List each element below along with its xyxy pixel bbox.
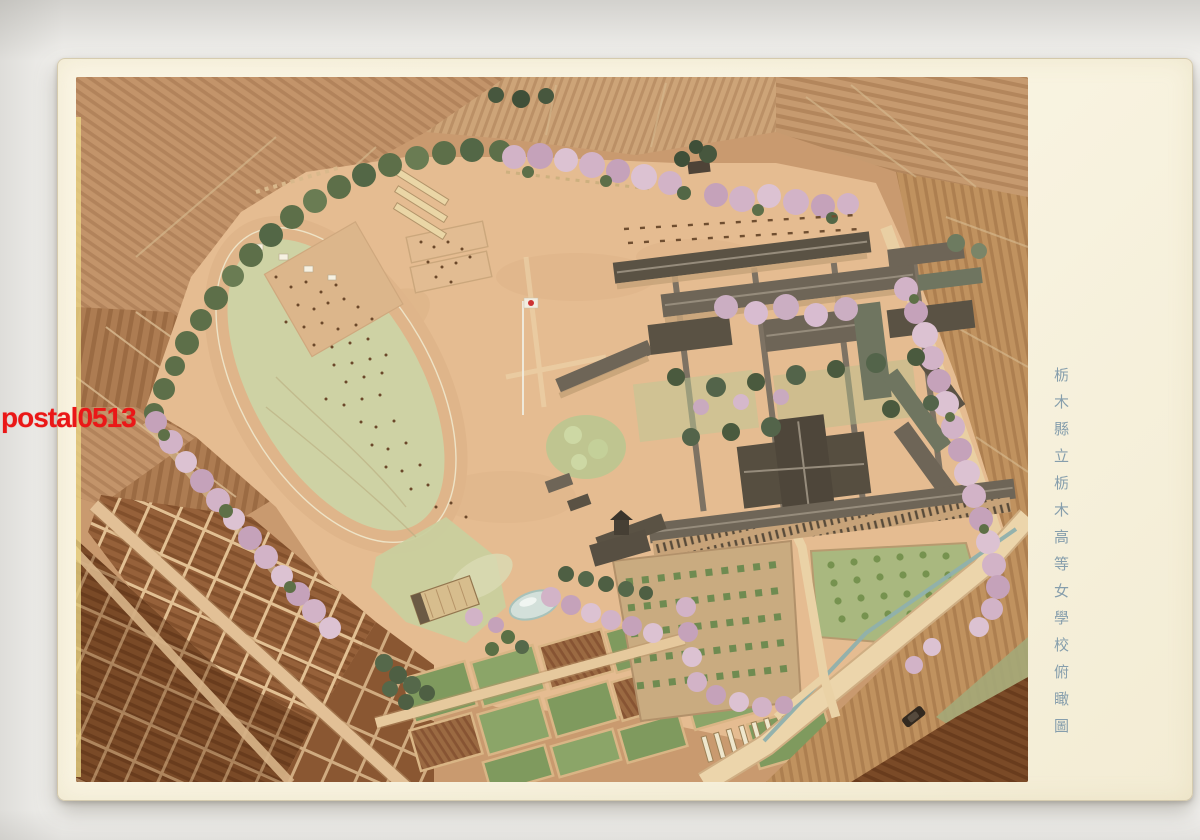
caption-vertical-text: 栃木縣立栃木高等女學校俯瞰圖 (1047, 367, 1075, 771)
watermark-text: postal0513 (1, 402, 136, 434)
scanner-background: 栃木縣立栃木高等女學校俯瞰圖 postal0513 (0, 0, 1200, 840)
postcard: 栃木縣立栃木高等女學校俯瞰圖 (57, 58, 1193, 801)
birdseye-illustration (76, 77, 1028, 782)
painting-svg (76, 77, 1028, 782)
scan-shadow-bottom (0, 810, 1200, 840)
edge-yellowing (76, 117, 81, 777)
